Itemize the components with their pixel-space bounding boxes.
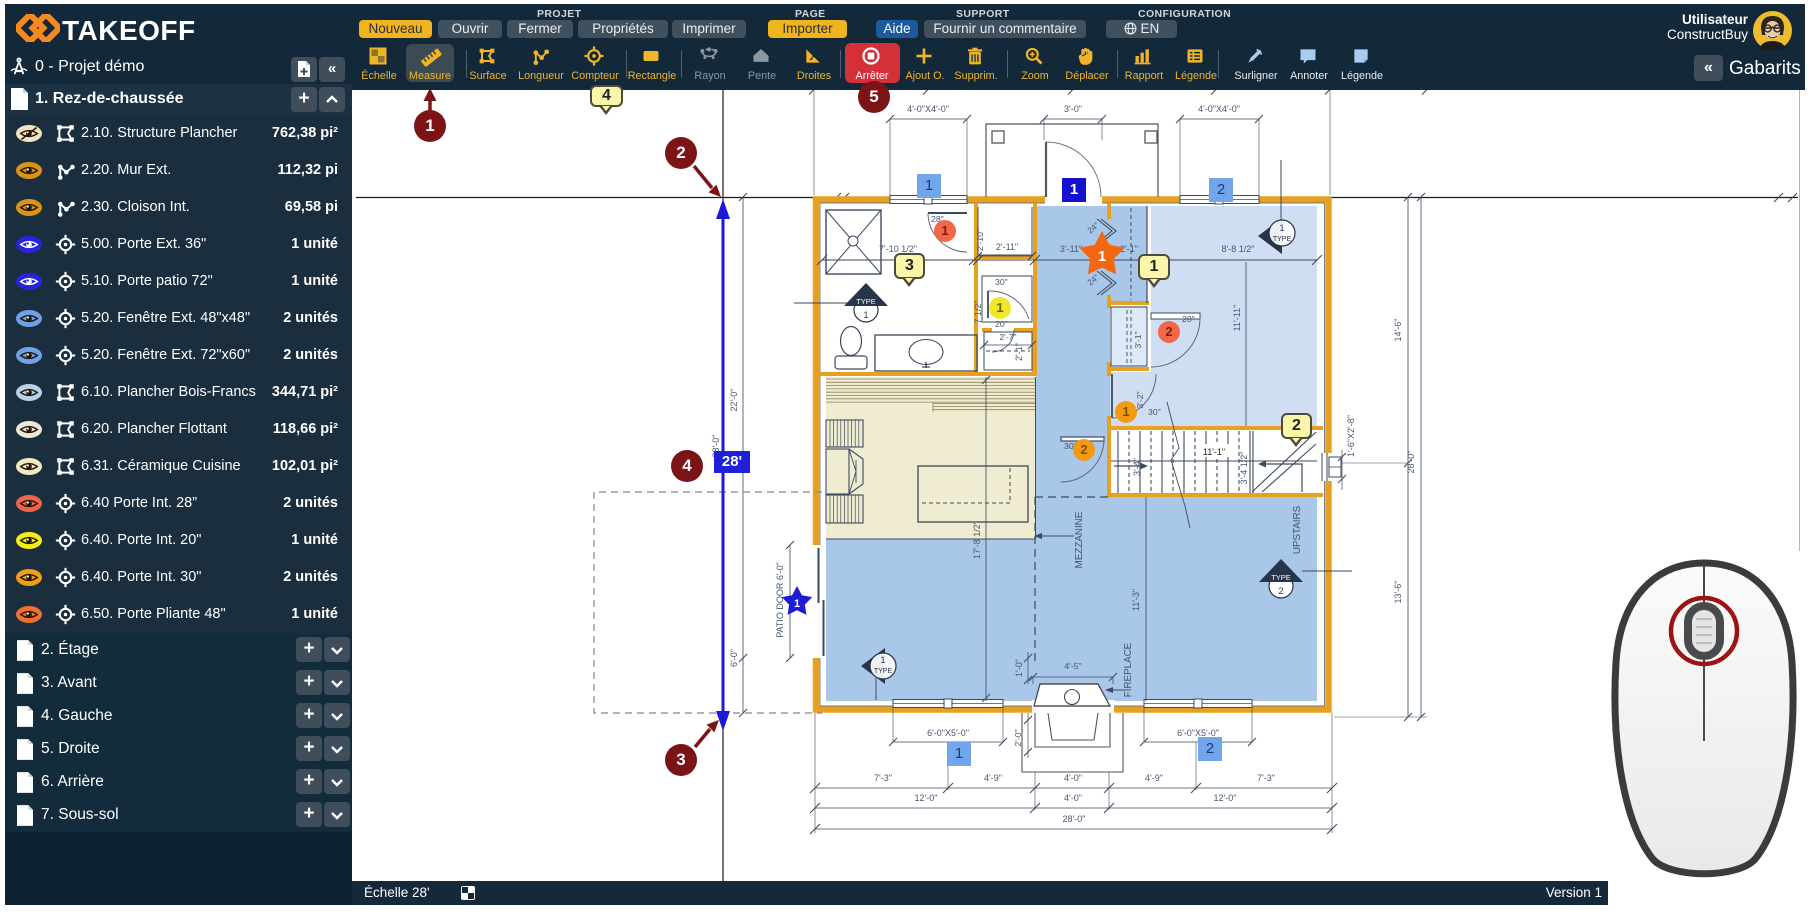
svg-text:7'-3": 7'-3" bbox=[874, 773, 892, 783]
svg-text:11'-3": 11'-3" bbox=[1131, 589, 1141, 611]
svg-text:3'-11": 3'-11" bbox=[1060, 244, 1082, 254]
svg-text:8'-8 1/2": 8'-8 1/2" bbox=[1222, 244, 1255, 254]
svg-text:TYPE: TYPE bbox=[856, 297, 876, 306]
svg-text:4'-5": 4'-5" bbox=[1064, 661, 1081, 671]
svg-text:6'-0"X5'-0": 6'-0"X5'-0" bbox=[927, 728, 969, 738]
svg-text:4'-0": 4'-0" bbox=[1064, 773, 1082, 783]
svg-text:PATIO DOOR 6'-0": PATIO DOOR 6'-0" bbox=[775, 562, 785, 638]
svg-text:17'-8 1/2": 17'-8 1/2" bbox=[972, 521, 982, 559]
svg-text:12'-0": 12'-0" bbox=[915, 793, 938, 803]
svg-text:4'-9": 4'-9" bbox=[1145, 773, 1163, 783]
svg-text:28'-0": 28'-0" bbox=[1063, 814, 1086, 824]
svg-text:1: 1 bbox=[794, 598, 800, 610]
svg-text:1: 1 bbox=[880, 655, 885, 665]
svg-text:TYPE: TYPE bbox=[874, 668, 893, 675]
svg-text:28": 28" bbox=[1182, 314, 1195, 324]
svg-text:22'-0": 22'-0" bbox=[729, 389, 739, 412]
svg-text:1: 1 bbox=[863, 310, 868, 320]
svg-text:FIREPLACE: FIREPLACE bbox=[1123, 642, 1134, 697]
svg-text:4'-0"X4'-0": 4'-0"X4'-0" bbox=[1198, 104, 1240, 114]
svg-text:1'-6"X2'-8": 1'-6"X2'-8" bbox=[1346, 415, 1356, 457]
svg-text:UPSTAIRS: UPSTAIRS bbox=[1292, 505, 1303, 554]
svg-text:6'-0": 6'-0" bbox=[729, 649, 739, 667]
svg-text:20": 20" bbox=[995, 319, 1008, 329]
svg-text:3'-4": 3'-4" bbox=[1132, 458, 1142, 476]
svg-text:30": 30" bbox=[1148, 407, 1161, 417]
svg-text:14'-6": 14'-6" bbox=[1393, 319, 1403, 342]
svg-text:12'-0": 12'-0" bbox=[1214, 793, 1237, 803]
svg-text:7'-3": 7'-3" bbox=[1257, 773, 1275, 783]
svg-text:2'-7": 2'-7" bbox=[999, 332, 1016, 342]
svg-text:TYPE: TYPE bbox=[1273, 236, 1292, 243]
svg-text:11'-11": 11'-11" bbox=[1232, 305, 1242, 332]
svg-text:3'-0": 3'-0" bbox=[1064, 104, 1082, 114]
svg-text:7 1/2": 7 1/2" bbox=[973, 300, 983, 323]
svg-text:2'-1": 2'-1" bbox=[1014, 343, 1024, 361]
svg-text:4'-0"X4'-0": 4'-0"X4'-0" bbox=[907, 104, 949, 114]
svg-text:TYPE: TYPE bbox=[1271, 573, 1291, 582]
svg-text:1'-0": 1'-0" bbox=[1014, 659, 1024, 677]
svg-text:2'-10": 2'-10" bbox=[975, 229, 985, 251]
svg-text:MEZZANINE: MEZZANINE bbox=[1074, 511, 1085, 568]
svg-text:13'-6": 13'-6" bbox=[1393, 581, 1403, 604]
svg-text:1: 1 bbox=[1279, 223, 1284, 233]
svg-text:2'-0": 2'-0" bbox=[1013, 729, 1023, 746]
svg-text:3'-2": 3'-2" bbox=[1135, 391, 1145, 408]
svg-text:1: 1 bbox=[1098, 248, 1106, 265]
svg-text:3'-1": 3'-1" bbox=[1133, 331, 1143, 348]
svg-text:3'-4 1/2": 3'-4 1/2" bbox=[1239, 452, 1249, 485]
svg-text:30": 30" bbox=[995, 277, 1008, 287]
svg-text:2: 2 bbox=[1278, 586, 1283, 596]
svg-text:11'-1": 11'-1" bbox=[1203, 447, 1225, 457]
svg-text:2'-11": 2'-11" bbox=[996, 242, 1018, 252]
svg-text:28'-0": 28'-0" bbox=[1406, 451, 1416, 474]
svg-text:4'-9": 4'-9" bbox=[984, 773, 1002, 783]
svg-text:4'-0": 4'-0" bbox=[1064, 793, 1082, 803]
